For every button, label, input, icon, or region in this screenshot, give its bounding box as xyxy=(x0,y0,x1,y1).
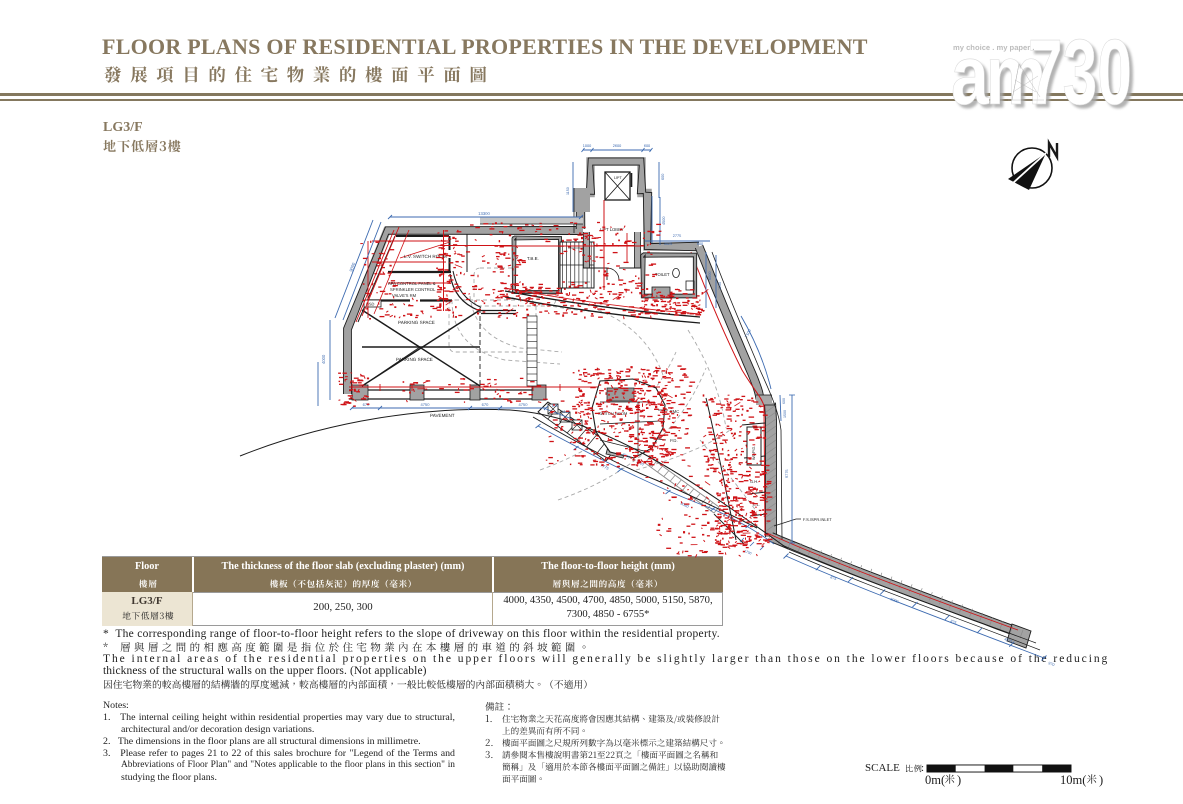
svg-text:P.D.: P.D. xyxy=(670,438,678,443)
svg-text:1100: 1100 xyxy=(718,282,722,290)
svg-text:TOILET: TOILET xyxy=(655,272,670,277)
svg-text:2600: 2600 xyxy=(613,144,621,148)
svg-text:G.H.: G.H. xyxy=(750,479,758,484)
svg-text:600: 600 xyxy=(782,398,786,404)
svg-text:600: 600 xyxy=(661,174,665,180)
svg-text:1150: 1150 xyxy=(566,187,570,195)
svg-text:T.B.E.: T.B.E. xyxy=(527,256,539,261)
svg-text:9775: 9775 xyxy=(785,470,789,478)
svg-text:7100: 7100 xyxy=(743,328,752,339)
svg-text:1700: 1700 xyxy=(744,549,753,555)
svg-text:875: 875 xyxy=(830,575,837,581)
svg-text:875: 875 xyxy=(950,619,957,625)
svg-text:LIFT: LIFT xyxy=(614,176,622,180)
svg-text:PARKING SPACE: PARKING SPACE xyxy=(396,357,433,362)
svg-text:4000: 4000 xyxy=(321,354,326,364)
svg-text:600: 600 xyxy=(644,144,650,148)
svg-text:870: 870 xyxy=(552,404,558,408)
svg-text:7775: 7775 xyxy=(600,462,611,471)
svg-text:SPRINKLER CONTROL: SPRINKLER CONTROL xyxy=(390,287,436,292)
svg-text:F.S./SPR.INLET: F.S./SPR.INLET xyxy=(803,517,832,522)
svg-text:670: 670 xyxy=(482,402,489,407)
svg-text:1500: 1500 xyxy=(783,410,787,418)
svg-text:970: 970 xyxy=(1048,661,1055,667)
svg-text:WD/P.D.: WD/P.D. xyxy=(752,446,756,460)
svg-text:VALVE'S RM: VALVE'S RM xyxy=(392,293,417,298)
svg-text:PAVEMENT: PAVEMENT xyxy=(430,413,455,418)
svg-text:4750: 4750 xyxy=(519,402,529,407)
svg-text:PARKING SPACE: PARKING SPACE xyxy=(398,320,435,325)
svg-text:13300: 13300 xyxy=(478,211,490,216)
svg-text:6000: 6000 xyxy=(890,597,899,604)
svg-text:6000: 6000 xyxy=(708,272,712,280)
svg-text:4500: 4500 xyxy=(662,217,666,225)
svg-text:1000: 1000 xyxy=(583,144,591,148)
svg-text:3025: 3025 xyxy=(664,242,672,246)
svg-text:2775: 2775 xyxy=(673,234,681,238)
svg-text:600: 600 xyxy=(697,242,703,246)
svg-text:4750: 4750 xyxy=(421,402,431,407)
